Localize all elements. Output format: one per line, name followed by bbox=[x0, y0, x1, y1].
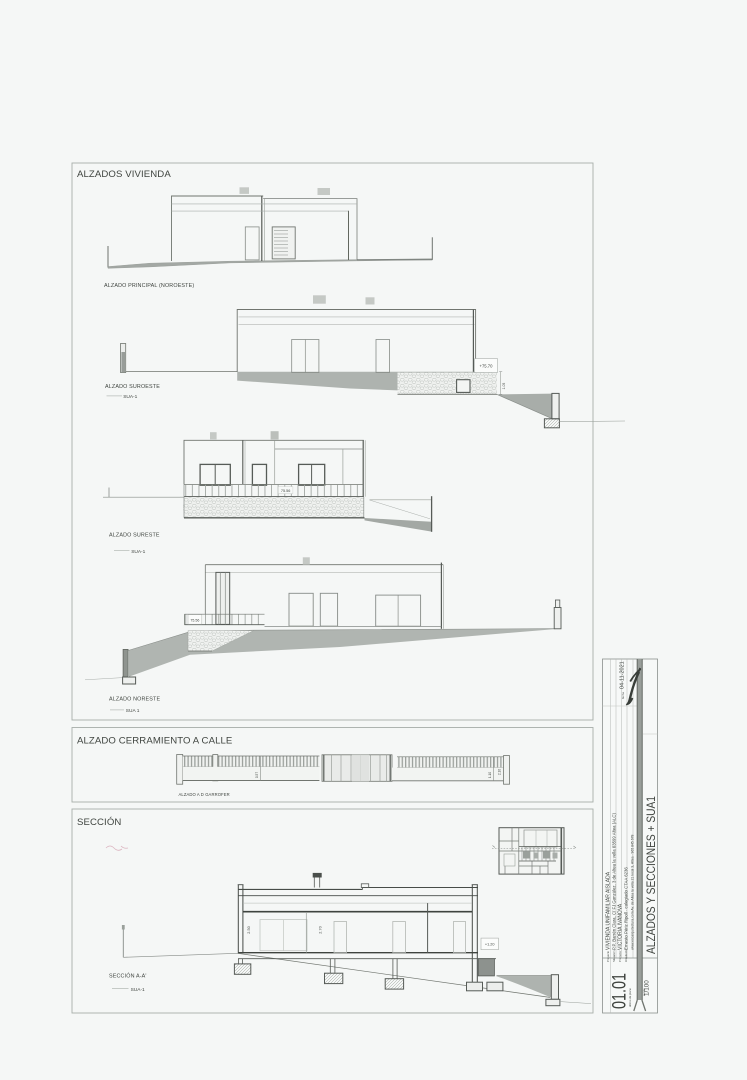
svg-text:ALZADO CERRAMIENTO A CALLE: ALZADO CERRAMIENTO A CALLE bbox=[77, 736, 232, 747]
svg-text:SUA 1: SUA 1 bbox=[126, 708, 140, 714]
svg-text:fecha: fecha bbox=[621, 692, 625, 699]
svg-text:SECCIÓN: SECCIÓN bbox=[77, 817, 121, 828]
svg-text:75.56: 75.56 bbox=[281, 489, 291, 493]
svg-text:ALZADO SUROESTE: ALZADO SUROESTE bbox=[105, 384, 160, 390]
svg-text:1.10: 1.10 bbox=[488, 772, 492, 778]
svg-text:Situación: Situación bbox=[612, 950, 616, 962]
svg-text:escala: escala bbox=[642, 988, 646, 996]
svg-text:SUA-1: SUA-1 bbox=[123, 394, 137, 400]
svg-text:Arquitecto: Arquitecto bbox=[624, 949, 628, 962]
svg-text:04-11-2021: 04-11-2021 bbox=[620, 661, 626, 689]
svg-text:2.50: 2.50 bbox=[247, 926, 251, 933]
svg-text:SUA-1: SUA-1 bbox=[131, 549, 145, 555]
svg-text:SECCIÓN A-A': SECCIÓN A-A' bbox=[109, 973, 147, 980]
svg-text:+75.70: +75.70 bbox=[480, 364, 494, 369]
svg-text:Ernesto Périz Ripoll · colegia: Ernesto Périz Ripoll · colegiado CTAA 62… bbox=[623, 867, 628, 950]
svg-text:Proyecto: Proyecto bbox=[606, 951, 610, 962]
svg-text:ALZADO PRINCIPAL (NOROESTE): ALZADO PRINCIPAL (NOROESTE) bbox=[104, 283, 194, 289]
svg-text:75.56: 75.56 bbox=[190, 619, 199, 623]
svg-text:2.70: 2.70 bbox=[319, 926, 323, 933]
svg-text:2.10: 2.10 bbox=[498, 769, 502, 775]
svg-text:0.57: 0.57 bbox=[255, 772, 259, 778]
svg-text:ALZADO SURESTE: ALZADO SURESTE bbox=[109, 533, 160, 539]
svg-text:ALZADOS VIVIENDA: ALZADOS VIVIENDA bbox=[77, 169, 171, 180]
svg-text:Promotor: Promotor bbox=[618, 950, 622, 962]
svg-text:ALZADOS Y SECCIONES + SUA1: ALZADOS Y SECCIONES + SUA1 bbox=[646, 796, 658, 954]
svg-text:SUA-1: SUA-1 bbox=[131, 987, 145, 993]
svg-text:P.P. Barrén Clara, C/ FJ Gonzá: P.P. Barrén Clara, C/ FJ González, 3 de … bbox=[611, 812, 616, 950]
svg-text:ALZADO NORESTE: ALZADO NORESTE bbox=[109, 697, 160, 703]
svg-text:+1.20: +1.20 bbox=[485, 943, 495, 947]
svg-text:último de plano: último de plano bbox=[628, 988, 632, 1007]
svg-text:www.escarquitectura.com Av.: www.escarquitectura.com Av. de Altea la … bbox=[631, 834, 635, 950]
svg-text:ALZADO A D GARROFER: ALZADO A D GARROFER bbox=[179, 792, 230, 797]
svg-text:1.05: 1.05 bbox=[502, 383, 506, 390]
